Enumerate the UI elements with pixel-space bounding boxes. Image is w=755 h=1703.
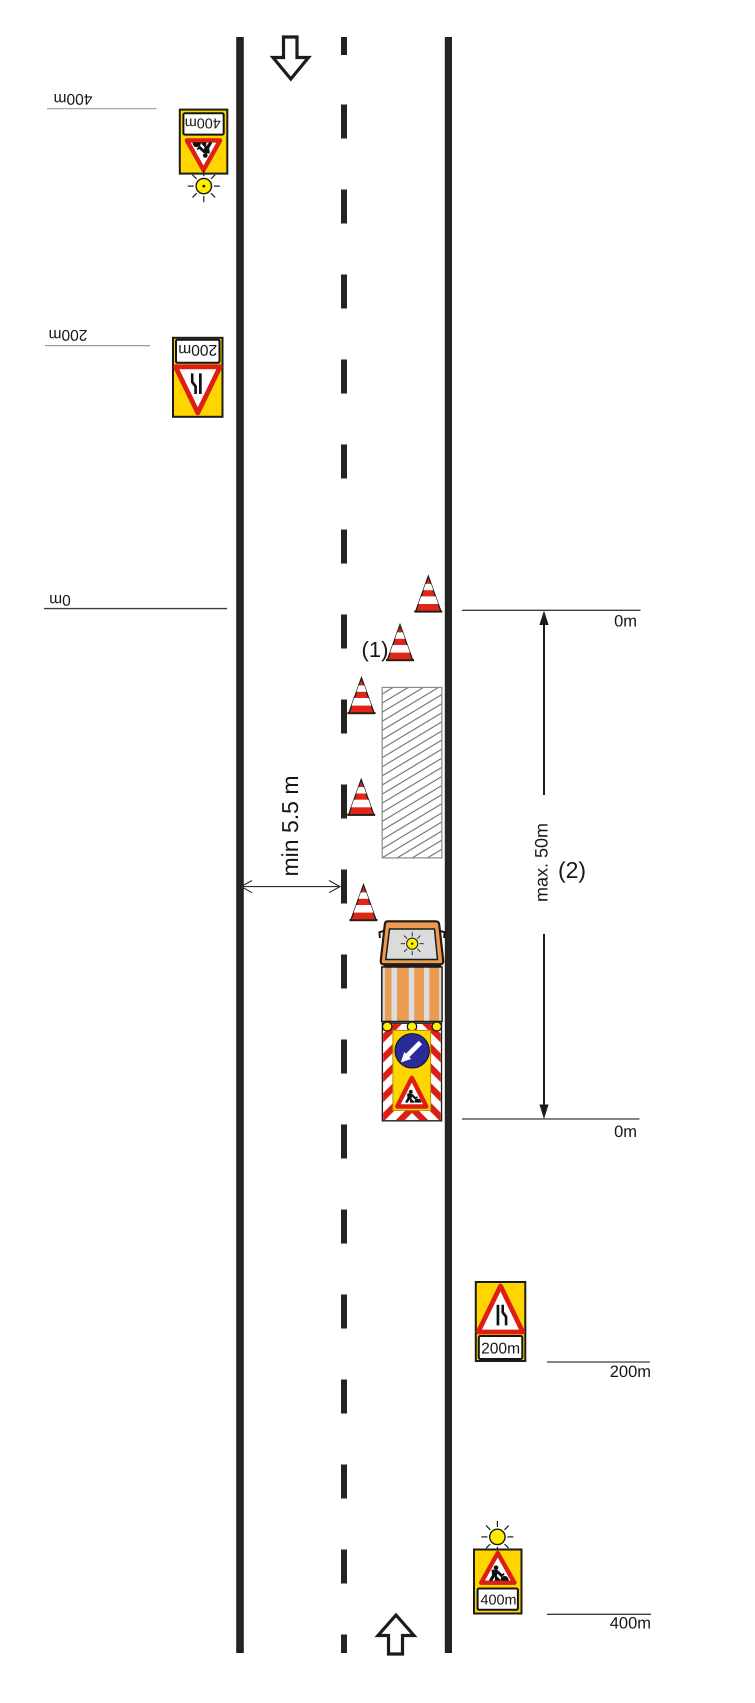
svg-text:min 5.5 m: min 5.5 m bbox=[277, 776, 303, 877]
svg-text:0m: 0m bbox=[614, 1123, 637, 1141]
svg-text:0m: 0m bbox=[49, 591, 71, 608]
svg-text:200m: 200m bbox=[49, 326, 88, 343]
svg-text:(1): (1) bbox=[362, 637, 389, 662]
svg-text:(2): (2) bbox=[558, 857, 586, 883]
svg-text:0m: 0m bbox=[614, 613, 637, 631]
svg-text:400m: 400m bbox=[610, 1615, 651, 1633]
svg-text:max. 50m: max. 50m bbox=[531, 823, 551, 902]
svg-text:200m: 200m bbox=[610, 1363, 651, 1381]
svg-text:400m: 400m bbox=[54, 90, 93, 107]
